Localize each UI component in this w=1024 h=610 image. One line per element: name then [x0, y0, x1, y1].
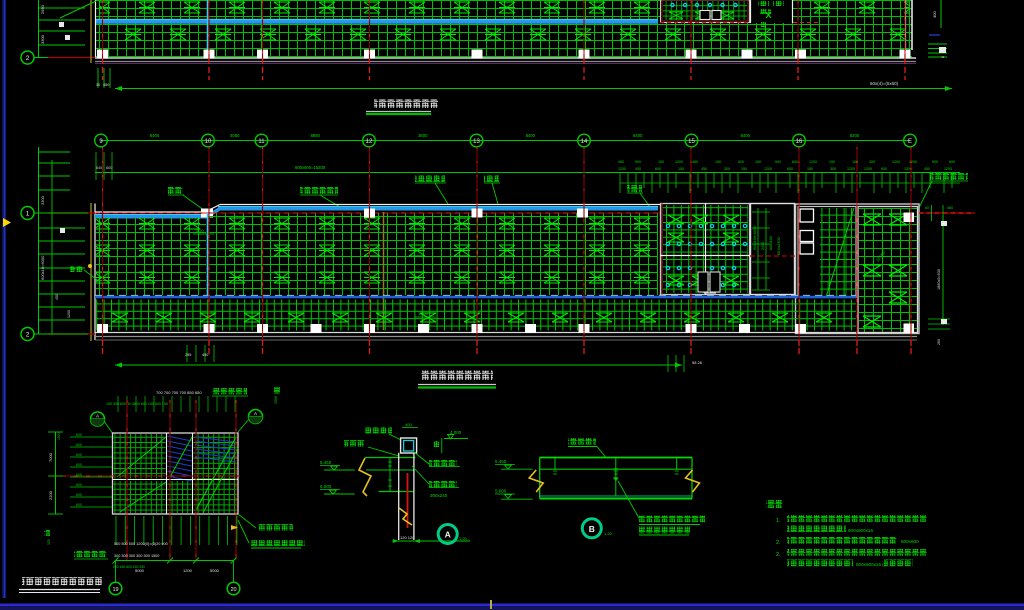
- svg-text:3300: 3300: [40, 34, 45, 44]
- svg-text:1: 1: [26, 211, 30, 218]
- svg-text:300 300 300 300 300 1500: 300 300 300 300 300 1500: [114, 554, 159, 558]
- svg-text:450: 450: [635, 167, 641, 171]
- svg-text:1200: 1200: [764, 167, 772, 171]
- svg-text:2200: 2200: [48, 490, 53, 500]
- svg-text:60.0x2400: 60.0x2400: [777, 237, 781, 255]
- svg-text:20: 20: [230, 587, 236, 593]
- svg-text:1200: 1200: [909, 160, 917, 164]
- svg-text:900: 900: [635, 160, 641, 164]
- svg-text:450: 450: [924, 167, 930, 171]
- svg-text:1200: 1200: [847, 167, 855, 171]
- svg-text:600: 600: [655, 167, 661, 171]
- svg-text:300: 300: [869, 160, 875, 164]
- svg-text:A: A: [96, 414, 99, 419]
- svg-text:600: 600: [738, 160, 744, 164]
- svg-text:1.: 1.: [776, 518, 781, 524]
- svg-text:1200: 1200: [944, 167, 952, 171]
- svg-text:10: 10: [205, 139, 212, 145]
- svg-text:125: 125: [47, 539, 51, 545]
- svg-text:150: 150: [755, 160, 761, 164]
- svg-text:1200: 1200: [864, 167, 872, 171]
- svg-text:600x600x15: 600x600x15: [848, 528, 873, 533]
- svg-text:5.000: 5.000: [320, 484, 332, 489]
- svg-text:1200: 1200: [67, 310, 71, 318]
- svg-text:460: 460: [947, 206, 953, 210]
- svg-text:600: 600: [76, 483, 82, 487]
- svg-text:3600: 3600: [418, 133, 428, 138]
- svg-text:1200: 1200: [809, 160, 817, 164]
- svg-text:600: 600: [787, 167, 793, 171]
- svg-text:16: 16: [796, 139, 803, 145]
- svg-text:7000: 7000: [48, 452, 53, 462]
- svg-text:3300: 3300: [40, 195, 45, 205]
- svg-text:5.450: 5.450: [320, 460, 332, 465]
- svg-text:5.20: 5.20: [196, 228, 205, 233]
- svg-text:450: 450: [701, 167, 707, 171]
- svg-text:8: 8: [941, 56, 945, 58]
- svg-text:500 500 500 1200(0)=(3)20 900: 500 500 500 1200(0)=(3)20 900: [114, 542, 168, 546]
- svg-text:A: A: [254, 411, 257, 416]
- svg-text:600x600x15 (: 600x600x15 (: [856, 562, 884, 567]
- svg-text:450: 450: [103, 83, 109, 87]
- svg-text:1:20: 1:20: [459, 536, 468, 541]
- svg-text:600x600=15200: 600x600=15200: [295, 165, 326, 170]
- svg-text:15: 15: [688, 139, 695, 145]
- svg-text:60: 60: [925, 206, 929, 210]
- svg-text:150: 150: [807, 167, 813, 171]
- svg-text:5.000: 5.000: [495, 489, 507, 494]
- svg-text:450: 450: [618, 160, 624, 164]
- svg-text:600: 600: [76, 493, 82, 497]
- svg-text:6000: 6000: [826, 280, 831, 290]
- svg-text:600: 600: [76, 503, 82, 507]
- svg-text:13: 13: [473, 139, 480, 145]
- svg-text:19: 19: [112, 587, 118, 593]
- svg-text:B: B: [589, 524, 595, 534]
- svg-text:8880: 8880: [311, 133, 321, 138]
- svg-text:4050: 4050: [230, 133, 240, 138]
- svg-text:5.450: 5.450: [495, 459, 507, 464]
- svg-text:2: 2: [26, 55, 30, 62]
- svg-text:8400: 8400: [150, 133, 160, 138]
- svg-text:150: 150: [715, 160, 721, 164]
- svg-text:2400: 2400: [761, 242, 765, 250]
- svg-text:11: 11: [258, 139, 265, 145]
- svg-text:150: 150: [829, 160, 835, 164]
- svg-text:8400: 8400: [633, 133, 643, 138]
- svg-text:A: A: [445, 530, 451, 540]
- svg-text:1200: 1200: [183, 568, 193, 573]
- svg-text:1200: 1200: [675, 160, 683, 164]
- svg-text:600: 600: [76, 463, 82, 467]
- svg-text:12: 12: [366, 139, 373, 145]
- svg-text:600: 600: [76, 443, 82, 447]
- svg-text:450: 450: [692, 160, 698, 164]
- svg-text:300x240: 300x240: [430, 493, 448, 498]
- svg-text:900: 900: [932, 160, 938, 164]
- svg-text:E: E: [908, 139, 912, 145]
- svg-text:2.: 2.: [776, 540, 781, 546]
- svg-text:600: 600: [76, 453, 82, 457]
- svg-text:2: 2: [26, 332, 30, 339]
- svg-text:600x100=6000: 600x100=6000: [753, 226, 757, 250]
- svg-text:450: 450: [202, 353, 208, 357]
- svg-text:300: 300: [724, 167, 730, 171]
- svg-text:1:20: 1:20: [604, 531, 613, 536]
- svg-text:1200: 1200: [618, 167, 626, 171]
- svg-text:700 700 700 700 850 850: 700 700 700 700 850 850: [156, 390, 202, 395]
- svg-text:600x100: 600x100: [769, 236, 773, 250]
- svg-text:8400: 8400: [741, 133, 751, 138]
- svg-text:8400: 8400: [526, 133, 536, 138]
- svg-text:150 300 600x6=3600 600 150 600: 150 300 600x6=3600 600 150 600 150: [106, 402, 168, 406]
- svg-text:600x600: 600x600: [901, 539, 919, 544]
- svg-text:1860x5=930: 1860x5=930: [937, 269, 941, 290]
- svg-text:5000: 5000: [135, 568, 145, 573]
- svg-text:5000: 5000: [210, 568, 220, 573]
- svg-text:600x10=6000: 600x10=6000: [40, 255, 45, 280]
- svg-text:14: 14: [581, 139, 588, 145]
- svg-text:60x(4)=(5x60): 60x(4)=(5x60): [870, 81, 899, 86]
- svg-text:98 26: 98 26: [692, 360, 703, 365]
- svg-text:30: 30: [96, 83, 100, 87]
- svg-text:900: 900: [881, 167, 887, 171]
- svg-text:600: 600: [792, 160, 798, 164]
- svg-text:150: 150: [658, 160, 664, 164]
- svg-text:400: 400: [932, 11, 937, 18]
- svg-text:2.: 2.: [776, 552, 781, 558]
- svg-text:150: 150: [741, 167, 747, 171]
- svg-text:450: 450: [55, 294, 59, 300]
- svg-text:645: 645: [96, 166, 102, 170]
- svg-text:600: 600: [76, 433, 82, 437]
- svg-text:900: 900: [775, 160, 781, 164]
- svg-text:120 120: 120 120: [400, 535, 415, 540]
- svg-text:1500: 1500: [57, 432, 61, 440]
- svg-text:300: 300: [830, 167, 836, 171]
- svg-text:600: 600: [106, 166, 112, 170]
- svg-text:295: 295: [185, 353, 191, 357]
- svg-text:400: 400: [405, 422, 412, 427]
- svg-text:1500: 1500: [274, 396, 278, 404]
- svg-text:600: 600: [76, 473, 82, 477]
- svg-text:150: 150: [678, 167, 684, 171]
- svg-text:8200: 8200: [850, 133, 860, 138]
- svg-text:2950: 2950: [40, 4, 45, 14]
- svg-text:260: 260: [937, 339, 941, 345]
- svg-text:600: 600: [949, 160, 955, 164]
- svg-text:15.00: 15.00: [418, 311, 429, 316]
- svg-text:1200: 1200: [892, 160, 900, 164]
